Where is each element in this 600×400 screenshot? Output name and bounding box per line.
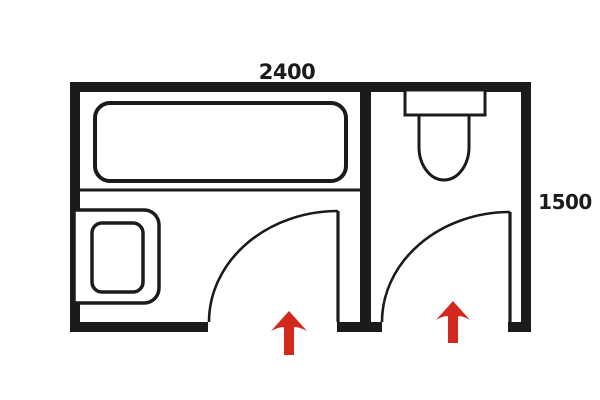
wall-partition	[360, 86, 371, 332]
floor-plan-drawing: 2400 1500	[0, 0, 600, 400]
wall-bottom-middle	[337, 322, 382, 332]
floor-plan: 2400 1500	[0, 0, 600, 400]
right-door	[382, 212, 510, 322]
vanity-group	[74, 210, 159, 303]
wall-bottom-left	[70, 322, 208, 332]
wall-right	[521, 82, 531, 332]
left-entrance-arrow-icon	[271, 311, 307, 355]
right-entrance-arrow-icon	[436, 301, 470, 343]
toilet-group	[405, 90, 485, 180]
left-door	[209, 211, 338, 322]
toilet-bowl-icon	[419, 115, 469, 180]
right-dimension-label: 1500	[538, 190, 592, 214]
toilet-tank-icon	[405, 90, 485, 115]
top-dimension-label: 2400	[259, 60, 315, 84]
left-door-swing-arc-icon	[209, 211, 338, 322]
washbasin-icon	[92, 223, 143, 292]
wall-bottom-right	[508, 322, 531, 332]
bathtub-icon	[95, 103, 346, 181]
right-door-swing-arc-icon	[382, 212, 510, 322]
